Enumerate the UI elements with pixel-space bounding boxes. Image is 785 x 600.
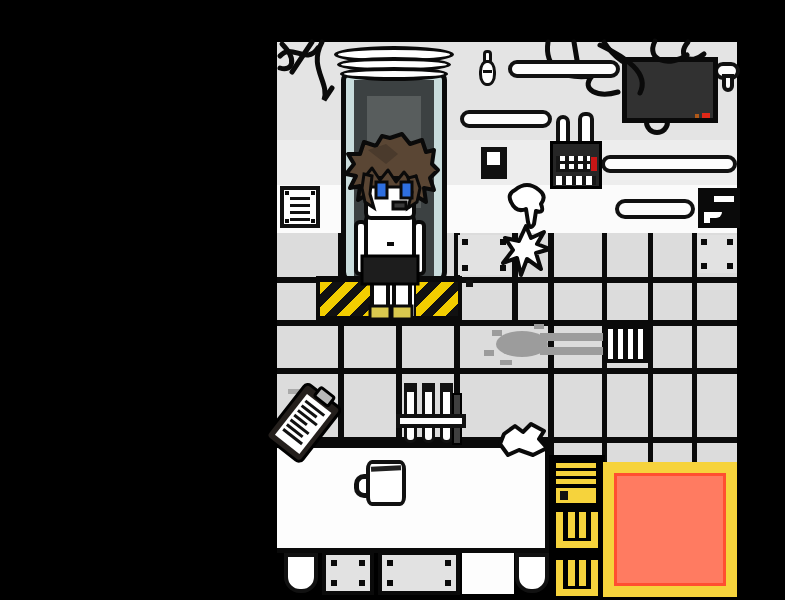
calendar-grid: [556, 156, 590, 172]
bulb-body: [479, 60, 496, 86]
clipboard[interactable]: [250, 383, 355, 468]
bolted-panel: [697, 235, 737, 273]
calendar-grid-bottom: [556, 176, 596, 185]
monitor-led-red: [702, 113, 710, 118]
table-front-panel: [378, 551, 460, 595]
pipe-mid: [460, 110, 552, 128]
pipe-top-hook: [722, 74, 734, 92]
pod-ring: [340, 67, 448, 81]
smear-icon: [470, 322, 610, 370]
table-leg: [515, 553, 549, 593]
test-tubes[interactable]: [396, 383, 466, 449]
pipe-baseboard: [615, 199, 695, 219]
mat[interactable]: [603, 462, 737, 597]
monitor-led-amber: [695, 114, 699, 118]
table-leg: [284, 553, 318, 593]
table-front-panel: [322, 551, 374, 595]
light-switch-button[interactable]: [487, 152, 500, 165]
game-viewport[interactable]: [0, 0, 785, 600]
bulb-band: [483, 70, 492, 73]
floor-speck: [466, 280, 473, 287]
wall-sign-dash: [714, 196, 734, 202]
splat-star-icon: [503, 226, 551, 276]
table-front-face: [462, 548, 514, 594]
calendar-red-mark: [591, 157, 597, 171]
drain-grate[interactable]: [603, 325, 650, 363]
vent[interactable]: [280, 186, 320, 228]
mug[interactable]: [354, 460, 408, 508]
wires-over-monitor-icon: [595, 35, 715, 97]
character: [338, 130, 442, 322]
crumpled-paper-icon: [500, 422, 550, 458]
pipe-right: [601, 155, 737, 173]
wall-sign-bend2: [704, 216, 710, 223]
